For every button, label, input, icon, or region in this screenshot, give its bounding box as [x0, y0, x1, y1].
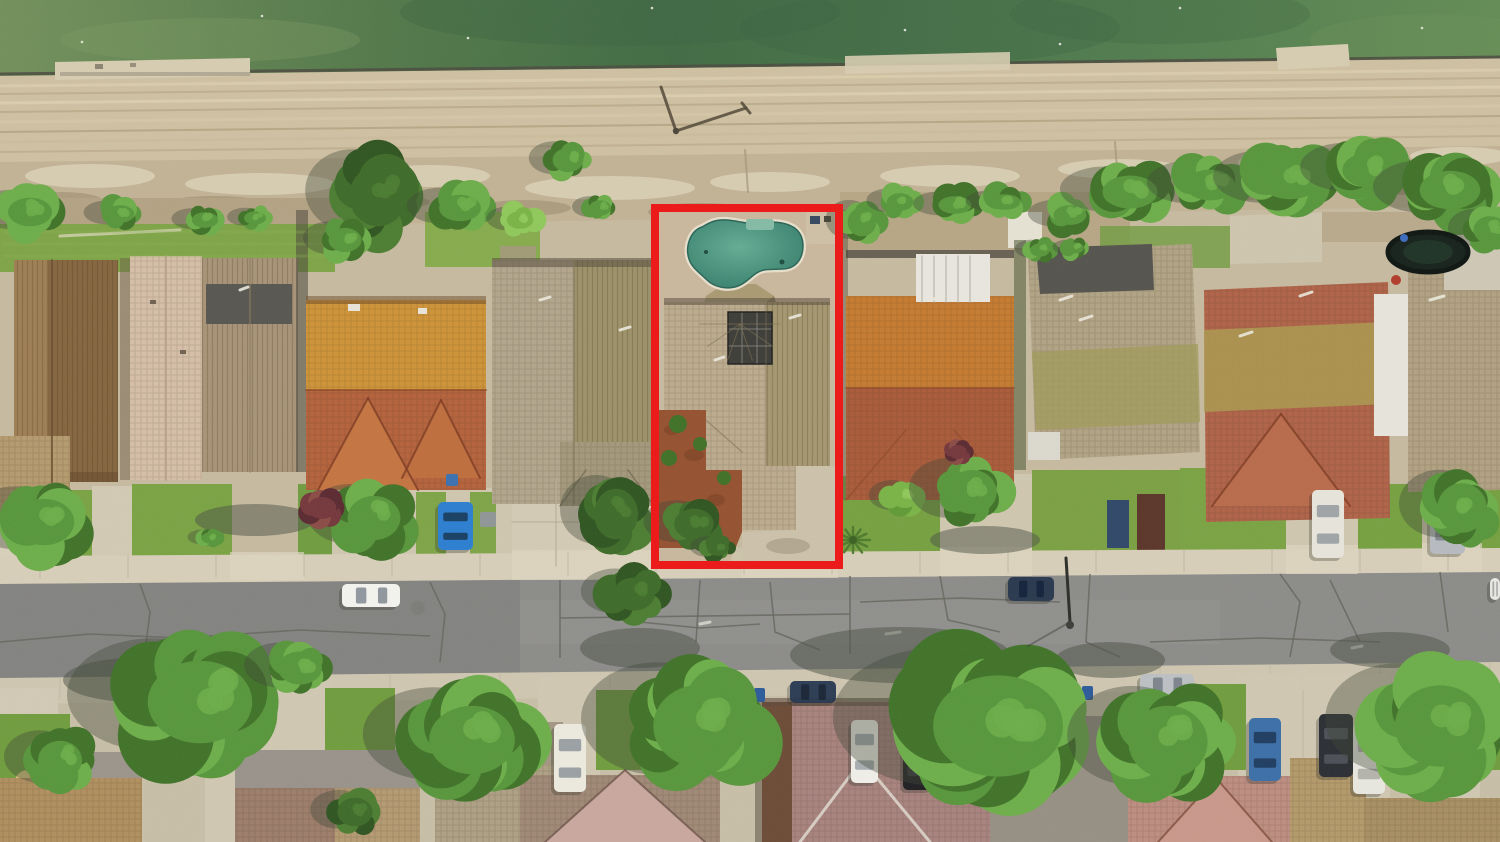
- photo-grain-overlay: [0, 0, 1500, 842]
- aerial-photo: [0, 0, 1500, 842]
- aerial-photo-canvas: [0, 0, 1500, 842]
- film-grain: [0, 0, 1500, 842]
